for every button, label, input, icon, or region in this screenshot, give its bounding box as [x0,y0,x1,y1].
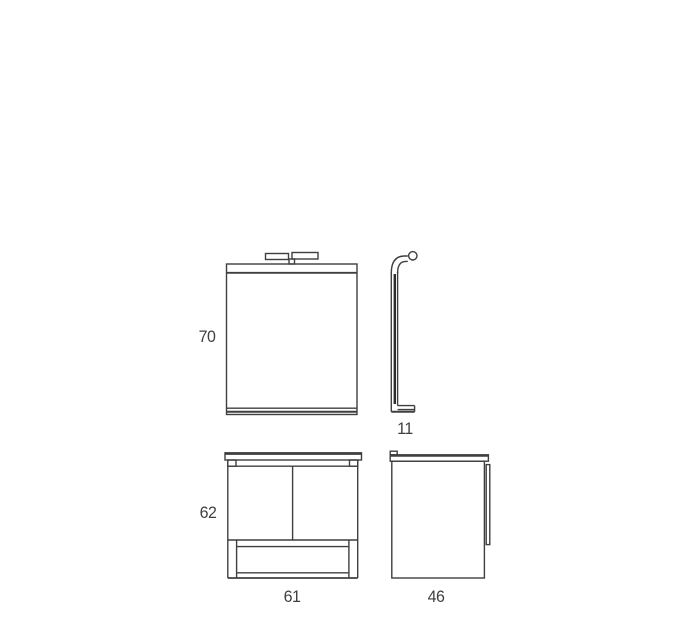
mirror-side-view [391,252,417,412]
light-fixture-bar-right [292,253,318,260]
dimension-diagram: 70 11 62 61 46 [0,0,688,637]
door-profile [486,465,490,545]
dimension-label-mirror-depth: 11 [389,420,421,438]
mirror-frame [227,264,358,415]
lamp-arm-inner [398,261,408,273]
side-panel-top-left [228,460,236,466]
lamp-bulb-icon [409,252,417,260]
dimension-label-vanity-width: 61 [276,588,308,606]
dimension-label-vanity-depth: 46 [420,588,452,606]
furniture-line-drawing [0,0,688,637]
cabinet-side-body [392,461,485,578]
dimension-label-vanity-height: 62 [192,504,224,522]
side-panel-top-right [350,460,358,466]
light-fixture-bar-left [266,254,289,260]
vanity-front-view [225,453,362,578]
vanity-side-view [390,451,490,578]
light-fixture-stem [289,259,295,264]
dimension-label-mirror-height: 70 [191,328,223,346]
mirror-glass [394,274,396,404]
mirror-front-view [227,253,358,415]
